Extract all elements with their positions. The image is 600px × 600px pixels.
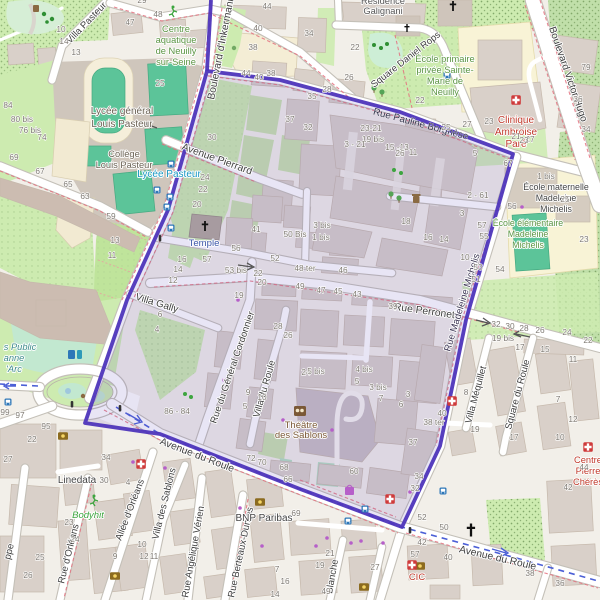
svg-text:10: 10 xyxy=(257,392,267,402)
svg-text:30: 30 xyxy=(207,132,217,142)
svg-text:5: 5 xyxy=(473,148,478,158)
svg-text:53 bis: 53 bis xyxy=(225,265,247,275)
svg-text:Collège: Collège xyxy=(108,149,140,159)
svg-text:22: 22 xyxy=(198,184,208,194)
svg-text:60: 60 xyxy=(349,466,359,476)
svg-text:99: 99 xyxy=(0,407,10,417)
svg-text:Chérès: Chérès xyxy=(573,477,600,487)
svg-text:19: 19 xyxy=(315,560,325,570)
svg-text:8: 8 xyxy=(464,387,469,397)
svg-text:26: 26 xyxy=(535,325,545,335)
svg-text:9: 9 xyxy=(246,387,251,397)
svg-text:54: 54 xyxy=(495,264,505,274)
svg-text:50 Bis: 50 Bis xyxy=(283,229,306,239)
svg-text:32: 32 xyxy=(410,483,420,493)
svg-text:72: 72 xyxy=(246,453,256,463)
svg-text:16: 16 xyxy=(423,232,433,242)
svg-text:3 - 21: 3 - 21 xyxy=(344,139,366,149)
svg-text:36: 36 xyxy=(573,94,583,104)
svg-text:36: 36 xyxy=(555,578,565,588)
svg-text:56: 56 xyxy=(231,243,241,253)
svg-text:38: 38 xyxy=(248,42,258,52)
svg-text:37: 37 xyxy=(408,437,418,447)
svg-text:2 - 61: 2 - 61 xyxy=(467,190,489,200)
svg-text:24: 24 xyxy=(70,534,80,544)
svg-text:1 bis: 1 bis xyxy=(312,232,330,242)
svg-text:27: 27 xyxy=(3,454,13,464)
svg-text:66: 66 xyxy=(283,474,293,484)
svg-text:48 ter: 48 ter xyxy=(294,263,315,273)
svg-text:27: 27 xyxy=(462,119,472,129)
svg-text:97: 97 xyxy=(15,410,25,420)
svg-text:4: 4 xyxy=(126,477,131,487)
svg-text:35: 35 xyxy=(307,91,317,101)
svg-text:52: 52 xyxy=(270,253,280,263)
svg-text:CIC: CIC xyxy=(409,572,426,583)
svg-text:13: 13 xyxy=(110,235,120,245)
svg-text:47: 47 xyxy=(316,285,326,295)
svg-text:9: 9 xyxy=(113,551,118,561)
svg-text:30: 30 xyxy=(99,475,109,485)
svg-text:86 - 84: 86 - 84 xyxy=(164,406,190,416)
svg-text:18: 18 xyxy=(401,216,411,226)
svg-text:57: 57 xyxy=(477,220,487,230)
svg-text:53: 53 xyxy=(473,262,483,272)
svg-text:28: 28 xyxy=(519,323,529,333)
svg-text:67: 67 xyxy=(35,166,45,176)
svg-text:Linedata: Linedata xyxy=(58,475,97,486)
svg-text:École primaire: École primaire xyxy=(415,54,474,64)
svg-text:20: 20 xyxy=(192,199,202,209)
svg-text:59: 59 xyxy=(106,211,116,221)
svg-text:'Arc: 'Arc xyxy=(6,364,22,374)
svg-text:84: 84 xyxy=(3,100,13,110)
svg-text:38: 38 xyxy=(266,68,276,78)
svg-text:29: 29 xyxy=(137,0,147,5)
svg-text:22: 22 xyxy=(350,42,360,52)
svg-text:17: 17 xyxy=(509,432,519,442)
svg-text:4: 4 xyxy=(155,324,160,334)
svg-text:44: 44 xyxy=(241,68,251,78)
svg-text:14: 14 xyxy=(439,234,449,244)
svg-text:22: 22 xyxy=(583,335,593,345)
svg-text:20: 20 xyxy=(257,277,267,287)
svg-text:Neuilly: Neuilly xyxy=(431,87,459,97)
svg-text:23: 23 xyxy=(519,135,529,145)
svg-text:École maternelle: École maternelle xyxy=(523,182,589,192)
svg-text:5: 5 xyxy=(243,401,248,411)
svg-text:Centre: Centre xyxy=(162,24,190,34)
svg-text:6: 6 xyxy=(158,309,163,319)
svg-text:48: 48 xyxy=(153,9,163,19)
svg-text:34: 34 xyxy=(304,28,314,38)
svg-text:70: 70 xyxy=(257,457,267,467)
svg-text:24: 24 xyxy=(562,327,572,337)
svg-text:BNP Paribas: BNP Paribas xyxy=(235,513,292,524)
svg-text:74: 74 xyxy=(37,132,47,142)
svg-text:25: 25 xyxy=(35,552,45,562)
svg-text:80 bis: 80 bis xyxy=(11,114,33,124)
svg-text:Clinique: Clinique xyxy=(498,115,535,126)
svg-text:51: 51 xyxy=(471,274,481,284)
svg-text:32: 32 xyxy=(303,122,313,132)
svg-text:68: 68 xyxy=(279,462,289,472)
svg-text:19: 19 xyxy=(470,424,480,434)
svg-text:49: 49 xyxy=(295,281,305,291)
svg-text:27: 27 xyxy=(370,562,380,572)
svg-text:3: 3 xyxy=(460,208,465,218)
svg-text:5: 5 xyxy=(355,376,360,386)
svg-text:Madeleine: Madeleine xyxy=(508,229,549,239)
svg-text:Louis Pasteur: Louis Pasteur xyxy=(91,119,153,130)
svg-text:11: 11 xyxy=(108,250,117,260)
svg-text:37: 37 xyxy=(285,114,295,124)
svg-text:40: 40 xyxy=(253,23,263,33)
svg-text:56: 56 xyxy=(507,201,517,211)
svg-text:25: 25 xyxy=(155,78,165,88)
svg-text:4 bis: 4 bis xyxy=(355,364,373,374)
svg-text:40: 40 xyxy=(254,72,264,82)
svg-text:24: 24 xyxy=(200,172,210,182)
svg-text:63: 63 xyxy=(80,191,90,201)
svg-text:Lycée Pasteur: Lycée Pasteur xyxy=(137,169,201,180)
svg-text:15: 15 xyxy=(540,344,550,354)
svg-text:14: 14 xyxy=(173,264,183,274)
svg-text:19: 19 xyxy=(234,290,244,300)
svg-text:aquatique: aquatique xyxy=(156,35,197,45)
svg-text:46: 46 xyxy=(338,265,348,275)
svg-text:34: 34 xyxy=(414,471,424,481)
svg-text:5 bis: 5 bis xyxy=(307,366,325,376)
svg-text:69: 69 xyxy=(9,152,19,162)
svg-text:7: 7 xyxy=(275,564,280,574)
svg-text:32: 32 xyxy=(491,319,501,329)
svg-text:23: 23 xyxy=(64,517,74,527)
svg-text:École élémentaire: École élémentaire xyxy=(493,218,564,228)
svg-text:3: 3 xyxy=(406,389,411,399)
svg-text:1 bis: 1 bis xyxy=(537,171,555,181)
svg-text:10: 10 xyxy=(460,252,470,262)
svg-text:10: 10 xyxy=(56,24,66,34)
svg-text:11: 11 xyxy=(409,147,418,157)
svg-text:16: 16 xyxy=(280,576,290,586)
svg-text:57: 57 xyxy=(410,549,420,559)
svg-text:34: 34 xyxy=(581,124,591,134)
svg-text:10: 10 xyxy=(555,432,565,442)
svg-text:13: 13 xyxy=(71,47,81,57)
svg-text:22: 22 xyxy=(415,95,425,105)
svg-text:14: 14 xyxy=(270,589,280,599)
svg-text:de Neuilly: de Neuilly xyxy=(156,46,197,56)
svg-text:42: 42 xyxy=(417,537,427,547)
svg-text:28: 28 xyxy=(322,84,332,94)
svg-text:25: 25 xyxy=(560,194,570,204)
svg-text:39: 39 xyxy=(388,301,398,311)
svg-text:67: 67 xyxy=(503,158,513,168)
svg-text:Bodyhit: Bodyhit xyxy=(72,510,104,521)
svg-text:26: 26 xyxy=(395,148,405,158)
svg-text:6: 6 xyxy=(399,399,404,409)
svg-text:47: 47 xyxy=(125,17,135,27)
svg-text:69: 69 xyxy=(291,508,301,518)
svg-text:65: 65 xyxy=(63,179,73,189)
svg-text:16: 16 xyxy=(177,254,187,264)
svg-text:55: 55 xyxy=(479,231,489,241)
svg-text:26: 26 xyxy=(344,72,354,82)
svg-text:11: 11 xyxy=(569,354,578,364)
svg-text:26: 26 xyxy=(23,570,33,580)
svg-text:21: 21 xyxy=(325,548,335,558)
svg-text:anne: anne xyxy=(4,353,25,363)
svg-text:Galignani: Galignani xyxy=(363,6,402,16)
svg-text:40: 40 xyxy=(443,552,453,562)
svg-text:Lycée général: Lycée général xyxy=(91,106,153,117)
svg-text:des Sablons: des Sablons xyxy=(275,430,328,441)
svg-text:23: 23 xyxy=(484,116,494,126)
svg-text:44: 44 xyxy=(579,462,589,472)
svg-text:Marie de: Marie de xyxy=(427,76,463,86)
svg-text:45: 45 xyxy=(333,286,343,296)
svg-text:44: 44 xyxy=(262,1,272,11)
svg-text:26: 26 xyxy=(283,330,293,340)
svg-text:22: 22 xyxy=(27,434,37,444)
svg-text:52: 52 xyxy=(417,512,427,522)
svg-text:17: 17 xyxy=(515,342,525,352)
svg-text:38 ter: 38 ter xyxy=(423,417,444,427)
svg-text:25: 25 xyxy=(441,122,451,132)
svg-text:Michelis: Michelis xyxy=(540,204,572,214)
svg-text:79: 79 xyxy=(581,62,591,72)
svg-text:34: 34 xyxy=(101,452,111,462)
svg-text:42: 42 xyxy=(563,482,573,492)
svg-text:12: 12 xyxy=(139,551,149,561)
svg-text:43: 43 xyxy=(352,289,362,299)
svg-text:30: 30 xyxy=(505,321,515,331)
svg-text:11: 11 xyxy=(150,551,159,561)
svg-text:23: 23 xyxy=(579,234,589,244)
svg-text:7: 7 xyxy=(379,393,384,403)
svg-text:3 bis: 3 bis xyxy=(369,382,387,392)
svg-text:23-21: 23-21 xyxy=(360,123,382,133)
svg-text:7: 7 xyxy=(556,394,561,404)
svg-text:50: 50 xyxy=(439,522,449,532)
svg-text:10: 10 xyxy=(137,539,147,549)
svg-text:3 bis: 3 bis xyxy=(313,220,331,230)
svg-text:14: 14 xyxy=(59,36,69,46)
svg-text:Madeleine: Madeleine xyxy=(536,193,577,203)
svg-text:privée Sainte-: privée Sainte- xyxy=(416,65,473,75)
svg-text:38: 38 xyxy=(525,568,535,578)
svg-text:28: 28 xyxy=(273,321,283,331)
svg-text:sur-Seine: sur-Seine xyxy=(156,57,196,67)
svg-text:49: 49 xyxy=(321,586,331,596)
svg-text:s Public: s Public xyxy=(4,342,37,352)
svg-text:95: 95 xyxy=(41,421,51,431)
svg-text:12: 12 xyxy=(568,414,578,424)
svg-text:41: 41 xyxy=(251,224,261,234)
svg-text:19 bis: 19 bis xyxy=(492,333,514,343)
svg-text:Michelis: Michelis xyxy=(512,240,544,250)
svg-text:57: 57 xyxy=(202,254,212,264)
svg-text:12: 12 xyxy=(168,275,178,285)
svg-text:Temple: Temple xyxy=(189,238,220,249)
